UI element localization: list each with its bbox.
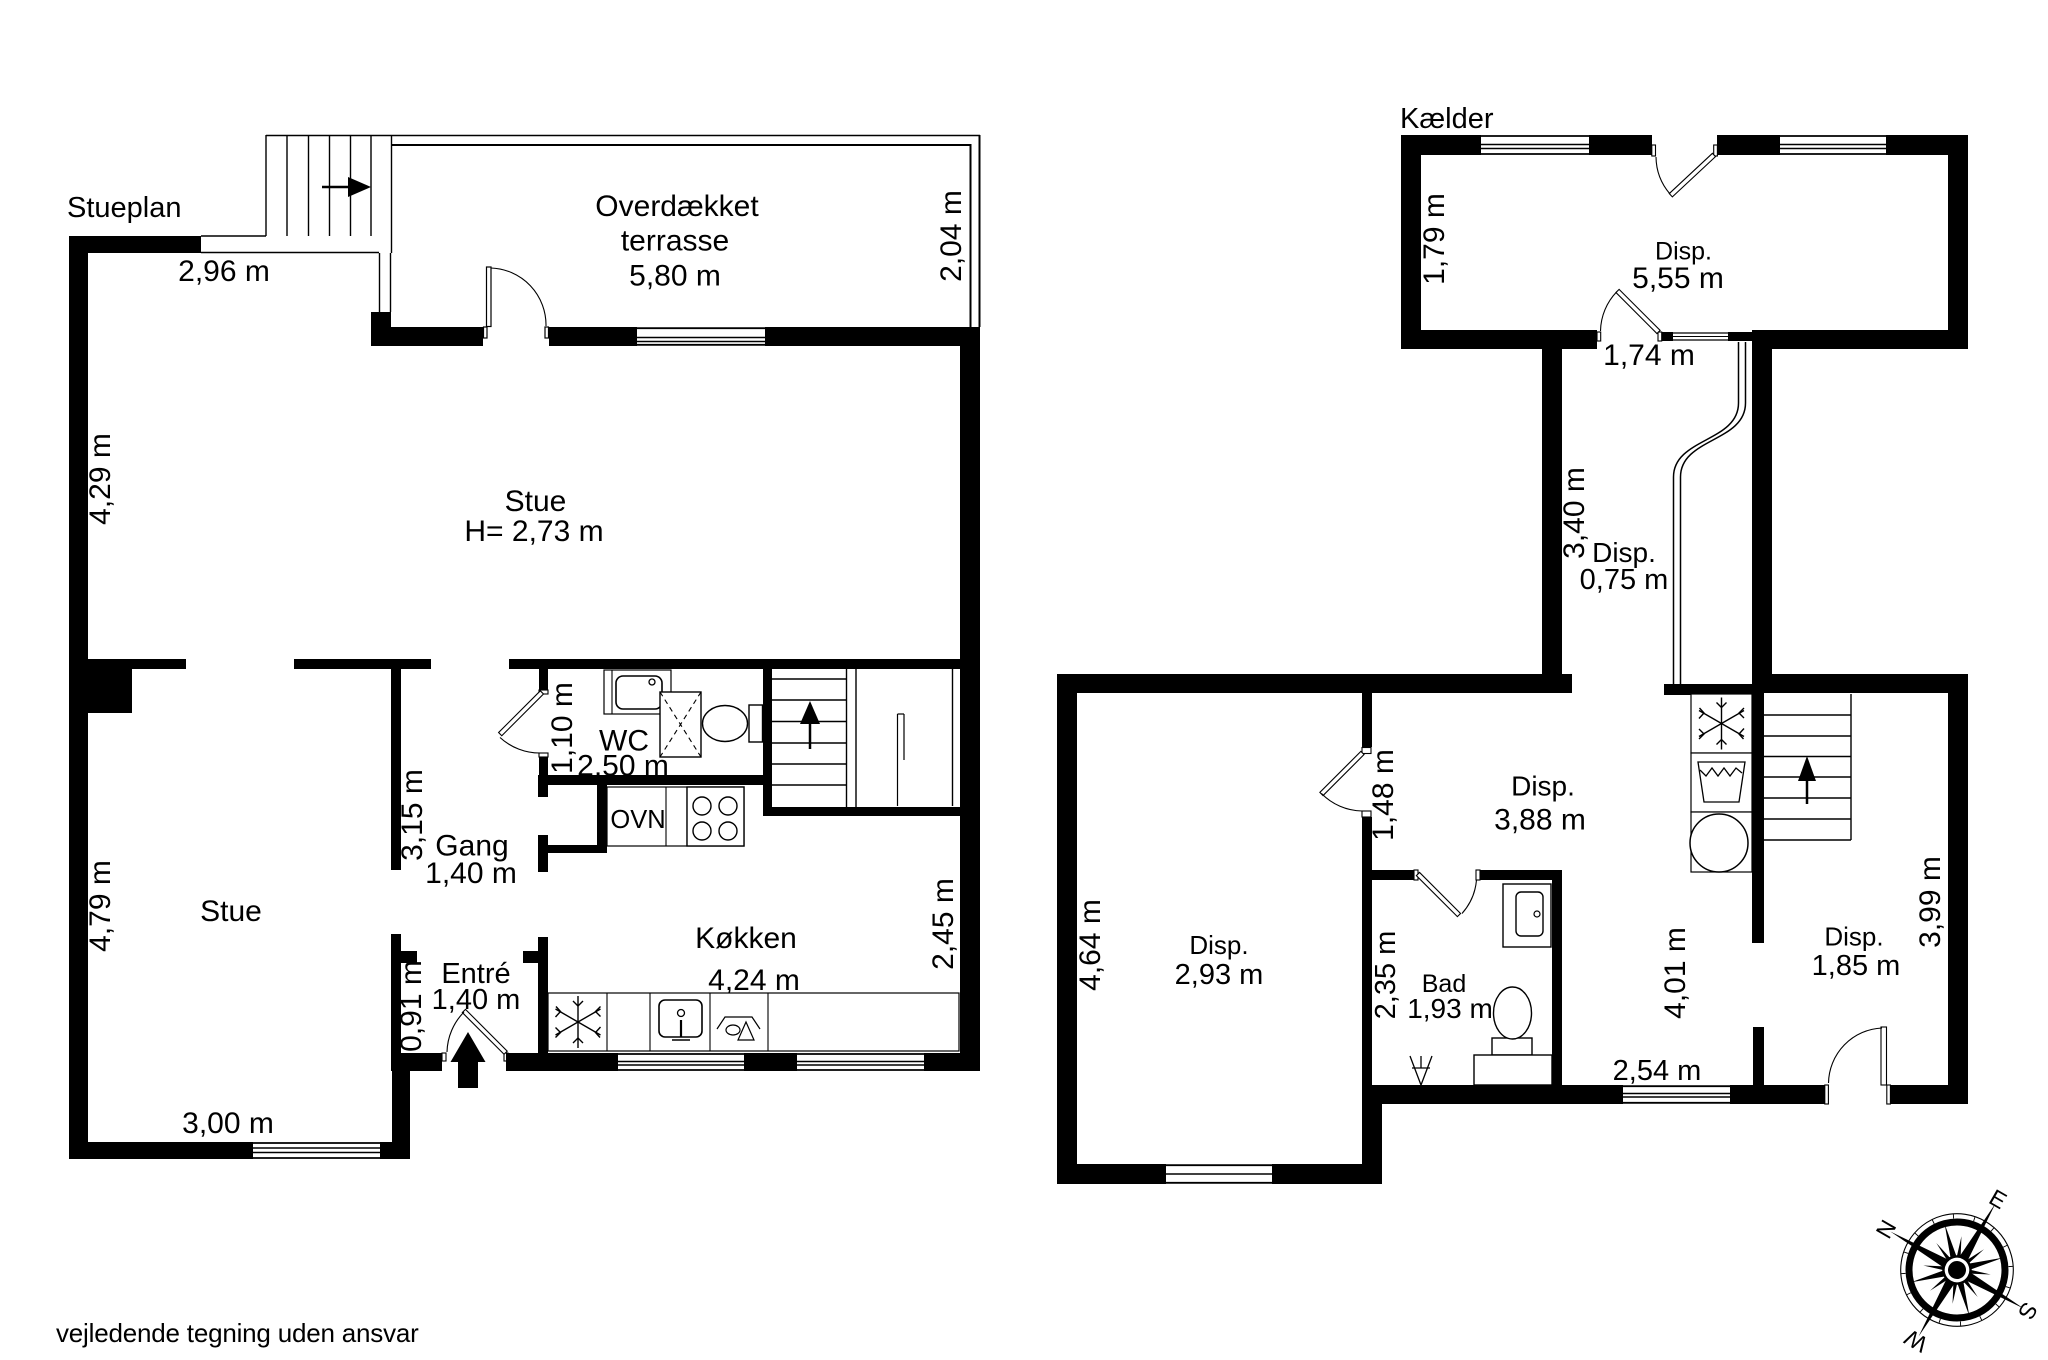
svg-text:0,75 m: 0,75 m	[1580, 564, 1669, 596]
svg-text:2,45 m: 2,45 m	[927, 878, 960, 970]
svg-text:0,91 m: 0,91 m	[395, 960, 428, 1052]
svg-text:Disp.: Disp.	[1511, 771, 1575, 802]
svg-text:H= 2,73 m: H= 2,73 m	[464, 515, 603, 548]
svg-text:1,79 m: 1,79 m	[1418, 193, 1451, 285]
svg-text:Disp.: Disp.	[1824, 922, 1883, 952]
svg-text:2,04 m: 2,04 m	[935, 190, 968, 282]
svg-text:Overdækket: Overdækket	[595, 190, 759, 223]
svg-text:4,29 m: 4,29 m	[84, 433, 117, 525]
svg-text:Stue: Stue	[200, 895, 262, 928]
svg-text:terrasse: terrasse	[621, 225, 729, 258]
svg-text:4,24 m: 4,24 m	[708, 964, 800, 997]
svg-text:2,54 m: 2,54 m	[1613, 1055, 1702, 1087]
svg-text:1,85 m: 1,85 m	[1812, 950, 1901, 982]
svg-text:3,15 m: 3,15 m	[396, 769, 429, 861]
svg-text:1,74 m: 1,74 m	[1603, 339, 1695, 372]
svg-text:5,55 m: 5,55 m	[1632, 262, 1724, 295]
svg-text:2,35 m: 2,35 m	[1370, 931, 1402, 1020]
svg-text:3,88 m: 3,88 m	[1494, 804, 1586, 837]
svg-text:2,93 m: 2,93 m	[1175, 959, 1264, 991]
svg-text:1,93 m: 1,93 m	[1407, 993, 1493, 1024]
svg-text:Stueplan: Stueplan	[67, 192, 182, 224]
svg-text:2,96 m: 2,96 m	[178, 255, 270, 288]
svg-text:5,80 m: 5,80 m	[629, 260, 721, 293]
svg-text:OVN: OVN	[610, 806, 665, 834]
svg-text:4,64 m: 4,64 m	[1074, 899, 1107, 991]
svg-text:Kælder: Kælder	[1400, 103, 1494, 135]
svg-text:3,99 m: 3,99 m	[1914, 856, 1947, 948]
svg-text:Disp.: Disp.	[1189, 930, 1248, 960]
svg-text:Stue: Stue	[505, 485, 567, 518]
svg-text:1,10 m: 1,10 m	[546, 682, 579, 774]
svg-text:4,79 m: 4,79 m	[84, 860, 117, 952]
svg-text:vejledende tegning uden ansvar: vejledende tegning uden ansvar	[56, 1318, 419, 1348]
svg-text:1,40 m: 1,40 m	[432, 984, 521, 1016]
svg-text:1,48 m: 1,48 m	[1367, 749, 1400, 841]
svg-text:4,01 m: 4,01 m	[1659, 927, 1692, 1019]
svg-text:Køkken: Køkken	[695, 922, 797, 955]
svg-text:1,40 m: 1,40 m	[425, 857, 517, 890]
svg-text:3,40 m: 3,40 m	[1558, 467, 1591, 559]
svg-text:3,00 m: 3,00 m	[182, 1107, 274, 1140]
